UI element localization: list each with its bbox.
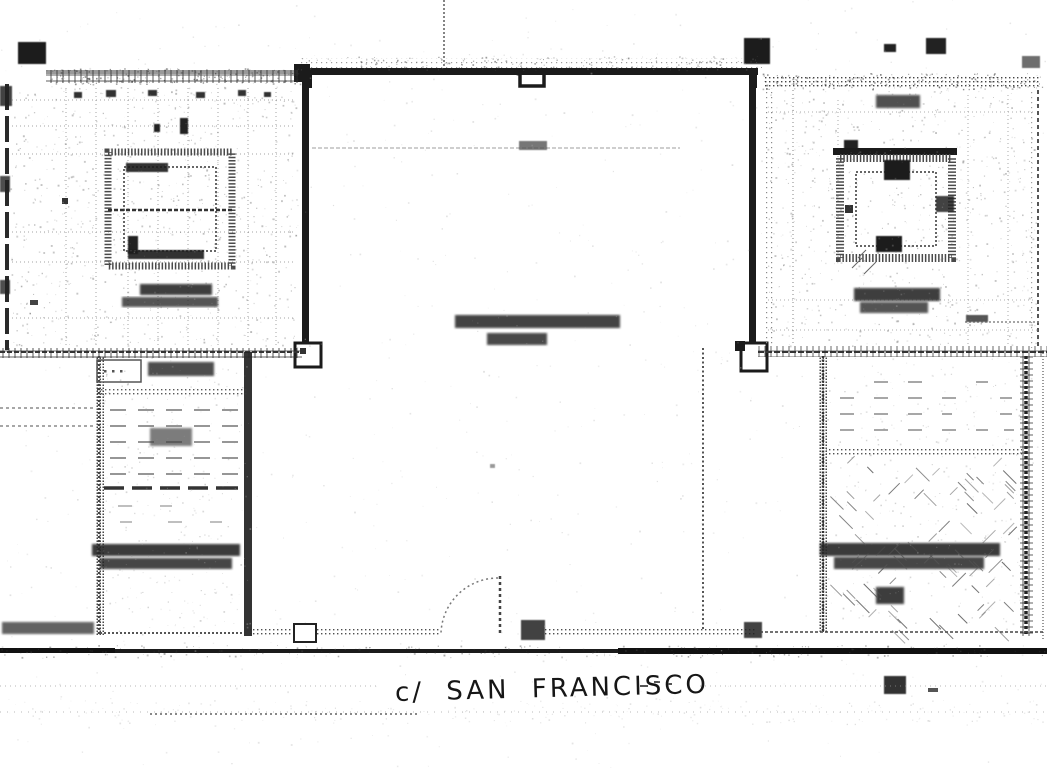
corner-blob-right xyxy=(744,38,770,64)
edge-blob xyxy=(0,86,12,106)
left-room xyxy=(2,352,252,636)
corner-blob xyxy=(18,42,46,64)
hall-bottom-wall-right xyxy=(545,628,757,637)
floor-speck xyxy=(490,464,495,468)
right-wing xyxy=(744,38,1040,348)
street-mark xyxy=(928,688,938,692)
left-room-smudge xyxy=(150,428,192,446)
grid-verticals xyxy=(66,88,276,346)
left-wing-label-smudge1 xyxy=(140,284,212,295)
right-room xyxy=(758,346,1047,643)
courtyard-top-bar xyxy=(126,163,168,172)
dot xyxy=(104,370,107,373)
right-room-dash-rows xyxy=(840,382,1014,430)
hall-top-wall xyxy=(306,68,758,75)
right-pier-mark xyxy=(735,341,745,351)
dot xyxy=(112,370,115,373)
street-name-label: c/ SAN FRANCISCO xyxy=(395,670,710,708)
bottom-pier-blob-right xyxy=(744,622,762,638)
left-room-label-smudge2 xyxy=(100,558,232,569)
dot xyxy=(120,370,123,373)
sidewalk-note-smudge xyxy=(2,622,94,634)
street-edge-dark-right xyxy=(618,648,1047,654)
hall-left-wall xyxy=(302,75,309,345)
top-mark xyxy=(926,38,946,54)
hall-right-wall xyxy=(749,75,756,345)
bottom-pier-box xyxy=(294,624,316,642)
edge-blob xyxy=(0,280,10,294)
floor-plan-scan: c/ SAN FRANCISCO xyxy=(0,0,1047,768)
hall-bottom-wall-left xyxy=(250,628,440,637)
ring-blob-top xyxy=(884,160,910,180)
street-edge-dark-left xyxy=(0,648,115,653)
right-room-mid-band xyxy=(826,449,1022,456)
left-room-label-smudge1 xyxy=(92,544,240,556)
plan-drawing: c/ SAN FRANCISCO xyxy=(0,0,1047,768)
left-room-top-band xyxy=(97,389,247,395)
door-swing-arc xyxy=(441,578,498,633)
left-edge-guides xyxy=(0,408,95,426)
right-wing-top-wall xyxy=(764,75,1040,87)
bottom-pier-blob xyxy=(521,620,545,640)
edge-blob xyxy=(0,176,10,192)
street-blob xyxy=(884,676,906,694)
guide-smudge xyxy=(966,315,988,322)
hall-label-smudge-line2 xyxy=(487,333,547,345)
right-wing-left-speckle xyxy=(766,88,775,346)
right-wing-note-smudge xyxy=(876,95,920,108)
street: c/ SAN FRANCISCO xyxy=(0,648,1047,714)
right-wing-label-smudge2 xyxy=(860,302,928,313)
top-door-notch xyxy=(520,75,544,86)
left-wing-label-smudge2 xyxy=(122,297,218,307)
top-mark xyxy=(1022,56,1040,68)
courtyard-inner-right xyxy=(856,172,936,246)
right-thick-bar xyxy=(833,148,957,155)
central-hall xyxy=(250,0,767,642)
ring-mark xyxy=(845,205,853,213)
left-room-title-smudge xyxy=(148,362,214,376)
door-hinge-blob xyxy=(515,69,522,76)
courtyard-bottom-bar xyxy=(128,250,204,259)
left-room-light-rows xyxy=(118,506,222,522)
ring-blob-right xyxy=(936,196,954,212)
hall-label-smudge-line1 xyxy=(455,315,620,328)
right-edge-speckle xyxy=(1028,90,1036,348)
